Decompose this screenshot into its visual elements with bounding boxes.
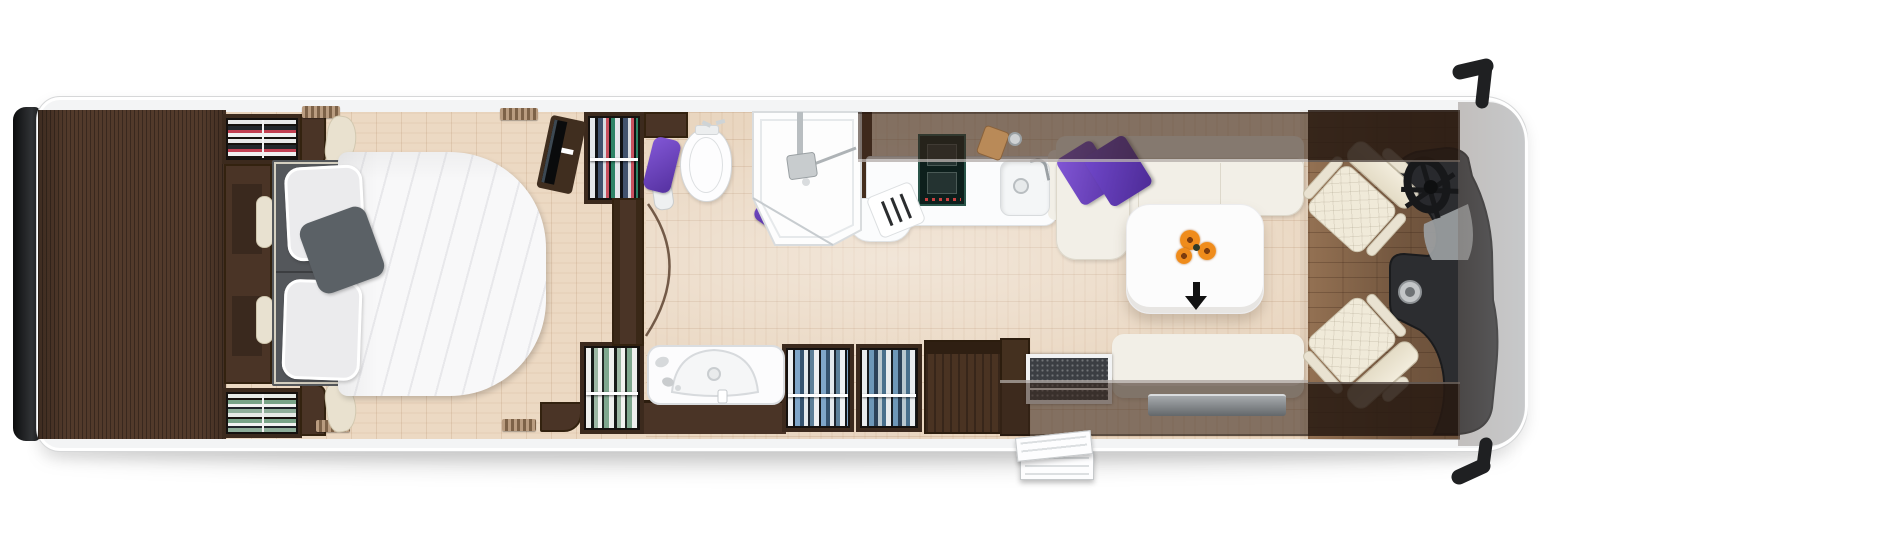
step-tread (1020, 436, 1087, 457)
entry-arrow-icon (1185, 296, 1207, 310)
wardrobe-rail (862, 394, 917, 397)
hanging-clothes (586, 348, 638, 428)
partition-wall (612, 198, 644, 346)
windscreen-zone (1458, 102, 1528, 446)
wardrobe-folded-top (222, 114, 302, 164)
cab-overhead-bottom (1308, 382, 1460, 436)
flower-icon (1198, 242, 1216, 260)
hob-controls (925, 198, 961, 201)
overhead-lockers-top (858, 112, 1308, 162)
vanity-base-cabinet (644, 400, 786, 434)
wardrobe-rail (586, 392, 639, 395)
hob-zone (927, 172, 957, 194)
sink-drain (1013, 178, 1029, 194)
wardrobe-folded-bottom (222, 388, 302, 438)
hanging-clothes (862, 350, 916, 426)
pillow (281, 279, 362, 382)
wardrobe-hanging-top (584, 112, 644, 204)
wardrobe-hanging-bath-2 (856, 344, 922, 432)
wardrobe-rail (590, 158, 639, 161)
hanging-clothes (788, 350, 848, 426)
vase (1193, 244, 1200, 251)
wardrobe-hanging-bath-1 (782, 344, 854, 432)
jar-icon (1008, 132, 1022, 146)
rear-deck (38, 110, 226, 439)
headboard-pad (256, 296, 273, 344)
flower-icon (1176, 248, 1192, 264)
shelf-divider (262, 394, 264, 432)
entry-arrow-icon (1193, 282, 1200, 297)
wardrobe-hanging-bottom (580, 342, 644, 434)
wall-vent-icon (500, 108, 538, 120)
floorplan-canvas (0, 0, 1902, 547)
wall-vent-icon (502, 419, 536, 431)
bedside-cabinet-top (300, 114, 326, 166)
toilet-shelf (644, 112, 688, 138)
cab-overhead-top (1308, 110, 1460, 162)
headboard-pad (256, 196, 273, 248)
wardrobe-rail (788, 394, 848, 397)
bed-foot-cabinet (540, 402, 582, 432)
shelf-divider (262, 120, 264, 158)
exterior-drawer (1148, 394, 1286, 416)
toilet (680, 128, 732, 202)
